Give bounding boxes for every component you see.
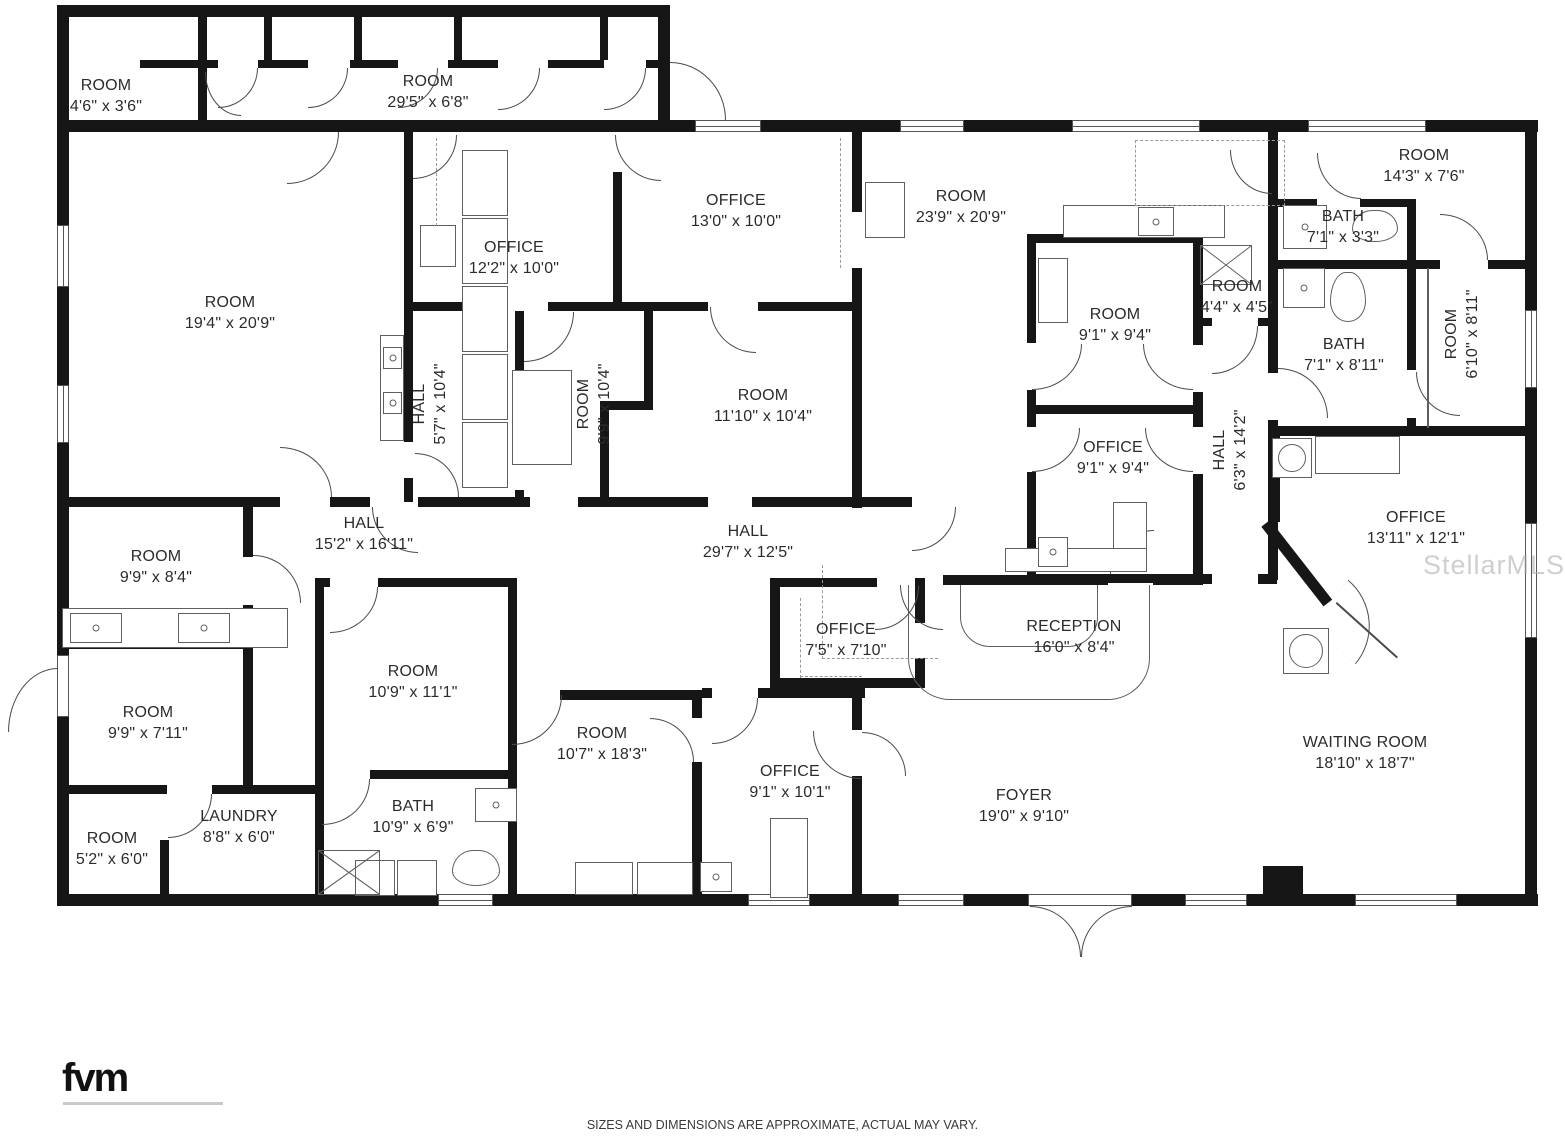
room-label: ROOM14'3" x 7'6": [1383, 145, 1464, 187]
furniture-rect: [462, 422, 508, 488]
wall-segment: [1407, 199, 1416, 260]
wall-segment: [646, 60, 670, 68]
door-arc-icon: [287, 132, 339, 184]
fvm-logo: fvm: [62, 1056, 127, 1101]
door-arc-icon: [322, 779, 370, 825]
furniture-rect: [462, 150, 508, 216]
wall-segment: [613, 172, 622, 302]
sink-icon: [1138, 207, 1174, 236]
room-dims: 9'1" x 9'4": [1077, 458, 1149, 479]
window: [1072, 120, 1200, 132]
room-label: ROOM9'9" x 7'11": [108, 702, 188, 744]
door-arc-icon: [862, 732, 906, 776]
room-name: ROOM: [916, 186, 1006, 207]
furniture-rect: [770, 818, 808, 898]
room-name: OFFICE: [805, 619, 886, 640]
door-arc-icon: [650, 718, 694, 762]
room-dims: 5'7" x 10'4": [430, 363, 451, 444]
room-dims: 7'1" x 8'11": [1304, 355, 1384, 376]
room-label: OFFICE13'0" x 10'0": [691, 190, 781, 232]
room-label: OFFICE13'11" x 12'1": [1367, 507, 1465, 549]
room-name: ROOM: [1079, 304, 1151, 325]
room-label: ROOM4'6" x 3'6": [70, 75, 142, 117]
room-label: ROOM10'9" x 11'1": [368, 661, 457, 703]
wall-segment: [560, 690, 702, 700]
window: [57, 225, 69, 287]
room-name: WAITING ROOM: [1303, 732, 1427, 753]
wall-segment: [1263, 866, 1303, 896]
room-label: OFFICE9'1" x 10'1": [749, 761, 830, 803]
room-dims: 19'0" x 9'10": [979, 806, 1069, 827]
watermark: StellarMLS: [1423, 550, 1565, 581]
wall-segment: [852, 776, 862, 905]
dashed-guide-line: [800, 676, 862, 677]
window: [438, 894, 493, 906]
room-name: ROOM: [1383, 145, 1464, 166]
furniture-rect: [575, 862, 633, 895]
furniture-rect: [462, 286, 508, 352]
wall-segment: [370, 770, 508, 779]
door-arc-icon: [1317, 153, 1361, 199]
sink-icon: [70, 613, 122, 643]
sink-icon: [700, 862, 732, 892]
door-opening: [1028, 894, 1132, 906]
wall-segment: [770, 578, 780, 678]
toilet-icon: [1330, 272, 1366, 322]
furniture-rect: [1315, 436, 1400, 474]
room-label: HALL15'2" x 16'11": [315, 513, 413, 555]
wall-segment: [160, 840, 169, 894]
room-label: ROOM9'9" x 10'4": [573, 363, 615, 444]
room-label: BATH7'1" x 3'3": [1307, 206, 1379, 248]
door-opening: [57, 655, 69, 717]
door-arc-icon: [415, 453, 459, 497]
door-arc-icon: [413, 135, 457, 179]
wall-segment: [315, 578, 330, 587]
room-dims: 6'10" x 8'11": [1462, 289, 1483, 378]
door-arc-icon: [205, 72, 241, 116]
door-arc-icon: [912, 507, 956, 551]
room-label: ROOM9'1" x 9'4": [1079, 304, 1151, 346]
door-arc-icon: [524, 312, 574, 362]
disclaimer-text: SIZES AND DIMENSIONS ARE APPROXIMATE, AC…: [0, 1118, 1565, 1132]
room-name: ROOM: [557, 723, 647, 744]
room-label: OFFICE12'2" x 10'0": [469, 237, 559, 279]
wall-segment: [458, 497, 530, 507]
room-name: HALL: [1209, 409, 1230, 490]
room-dims: 12'2" x 10'0": [469, 258, 559, 279]
wall-segment: [852, 688, 862, 730]
room-dims: 19'4" x 20'9": [185, 313, 275, 334]
door-arc-icon: [8, 668, 58, 732]
wall-segment: [692, 690, 702, 718]
room-name: ROOM: [120, 546, 192, 567]
room-name: ROOM: [76, 828, 148, 849]
window: [1525, 310, 1537, 388]
door-arc-icon: [280, 447, 332, 497]
wall-segment: [702, 688, 712, 698]
wall-segment: [212, 785, 315, 794]
wall-segment: [454, 16, 462, 60]
room-label: ROOM5'2" x 6'0": [76, 828, 148, 870]
window: [898, 894, 964, 906]
furniture-rect: [397, 860, 437, 896]
room-label: HALL5'7" x 10'4": [409, 363, 451, 444]
furniture-rect: [420, 225, 456, 267]
room-name: FOYER: [979, 785, 1069, 806]
room-dims: 9'1" x 9'4": [1079, 325, 1151, 346]
window: [57, 385, 69, 443]
wall-segment: [648, 497, 708, 507]
room-dims: 10'9" x 6'9": [372, 817, 453, 838]
wall-segment: [1027, 574, 1203, 583]
wall-segment: [1203, 574, 1212, 584]
room-dims: 6'3" x 14'2": [1230, 409, 1251, 490]
door-arc-icon: [604, 68, 646, 110]
room-dims: 13'11" x 12'1": [1367, 528, 1465, 549]
room-label: ROOM6'10" x 8'11": [1441, 289, 1483, 378]
door-arc-icon: [253, 555, 301, 603]
room-name: BATH: [1307, 206, 1379, 227]
room-name: OFFICE: [749, 761, 830, 782]
room-dims: 18'10" x 18'7": [1303, 753, 1427, 774]
wall-segment: [780, 578, 877, 587]
door-arc-icon: [1145, 428, 1193, 472]
sink-icon: [1038, 537, 1068, 567]
room-label: ROOM9'9" x 8'4": [120, 546, 192, 588]
room-name: ROOM: [714, 385, 812, 406]
room-dims: 14'3" x 7'6": [1383, 166, 1464, 187]
wall-segment: [1027, 405, 1203, 414]
wall-segment: [1525, 120, 1537, 906]
room-dims: 4'6" x 3'6": [70, 96, 142, 117]
room-name: ROOM: [108, 702, 188, 723]
window: [1185, 894, 1247, 906]
room-dims: 16'0" x 8'4": [1026, 637, 1121, 658]
room-name: HALL: [409, 363, 430, 444]
door-arc-icon: [1081, 906, 1132, 957]
room-label: ROOM29'5" x 6'8": [387, 71, 468, 113]
wall-segment: [600, 16, 608, 60]
floor-plan: ROOM4'6" x 3'6"ROOM29'5" x 6'8"ROOM19'4"…: [0, 0, 1565, 1138]
toilet-icon: [452, 850, 500, 886]
room-name: OFFICE: [691, 190, 781, 211]
round-sink-icon: [1272, 438, 1312, 478]
door-arc-icon: [1143, 344, 1193, 390]
door-arc-icon: [712, 698, 758, 744]
wall-segment: [57, 5, 69, 906]
sink-icon: [383, 392, 402, 414]
door-arc-icon: [512, 695, 562, 745]
room-name: BATH: [1304, 334, 1384, 355]
dashed-guide-line: [436, 138, 437, 226]
wall-segment: [258, 60, 308, 68]
room-name: RECEPTION: [1026, 616, 1121, 637]
room-label: BATH7'1" x 8'11": [1304, 334, 1384, 376]
door-arc-icon: [670, 62, 726, 120]
round-sink-icon: [1283, 628, 1329, 674]
wall-segment: [448, 60, 498, 68]
wall-segment: [1193, 474, 1203, 582]
room-dims: 11'10" x 10'4": [714, 406, 812, 427]
furniture-rect: [512, 370, 572, 465]
room-label: HALL6'3" x 14'2": [1209, 409, 1251, 490]
wall-segment: [140, 60, 218, 68]
wall-segment: [770, 678, 925, 688]
room-label: ROOM11'10" x 10'4": [714, 385, 812, 427]
room-name: HALL: [315, 513, 413, 534]
room-dims: 4'4" x 4'5": [1201, 297, 1273, 318]
room-dims: 7'1" x 3'3": [1307, 227, 1379, 248]
sink-icon: [178, 613, 230, 643]
room-label: BATH10'9" x 6'9": [372, 796, 453, 838]
window: [1355, 894, 1457, 906]
wall-segment: [758, 688, 865, 698]
room-name: LAUNDRY: [200, 806, 278, 827]
door-arc-icon: [1416, 372, 1460, 416]
wall-segment: [350, 60, 398, 68]
room-name: ROOM: [1441, 289, 1462, 378]
furniture-rect: [1038, 258, 1068, 323]
shower-icon: [318, 850, 380, 895]
wall-segment: [1277, 426, 1527, 436]
wall-segment: [548, 60, 604, 68]
wall-segment: [758, 302, 862, 311]
wall-segment: [404, 478, 413, 502]
room-dims: 13'0" x 10'0": [691, 211, 781, 232]
room-dims: 8'8" x 6'0": [200, 827, 278, 848]
room-label: ROOM10'7" x 18'3": [557, 723, 647, 765]
room-name: HALL: [703, 521, 793, 542]
room-label: HALL29'7" x 12'5": [703, 521, 793, 563]
room-label: WAITING ROOM18'10" x 18'7": [1303, 732, 1427, 774]
room-dims: 9'9" x 7'11": [108, 723, 188, 744]
furniture-rect: [1005, 548, 1147, 572]
room-name: ROOM: [368, 661, 457, 682]
sink-icon: [1283, 268, 1325, 308]
room-label: ROOM19'4" x 20'9": [185, 292, 275, 334]
wall-segment: [644, 311, 653, 401]
door-arc-icon: [308, 68, 348, 108]
room-dims: 7'5" x 7'10": [805, 640, 886, 661]
room-dims: 29'5" x 6'8": [387, 92, 468, 113]
door-arc-icon: [710, 307, 756, 353]
wall-segment: [1027, 242, 1036, 343]
room-name: ROOM: [1201, 276, 1273, 297]
wall-segment: [264, 16, 272, 60]
logo-tagline: [63, 1102, 223, 1105]
room-label: ROOM4'4" x 4'5": [1201, 276, 1273, 318]
dashed-guide-line: [800, 598, 801, 678]
dashed-guide-line: [840, 138, 841, 268]
furniture-rect: [637, 862, 693, 895]
wall-segment: [418, 497, 458, 507]
room-label: OFFICE9'1" x 9'4": [1077, 437, 1149, 479]
room-name: ROOM: [573, 363, 594, 444]
wall-segment: [1488, 260, 1526, 269]
room-label: FOYER19'0" x 9'10": [979, 785, 1069, 827]
wall-segment: [862, 497, 912, 507]
room-name: OFFICE: [469, 237, 559, 258]
sink-icon: [475, 788, 517, 822]
room-name: OFFICE: [1367, 507, 1465, 528]
window: [900, 120, 964, 132]
room-dims: 10'7" x 18'3": [557, 744, 647, 765]
room-label: OFFICE7'5" x 7'10": [805, 619, 886, 661]
room-dims: 9'1" x 10'1": [749, 782, 830, 803]
room-label: LAUNDRY8'8" x 6'0": [200, 806, 278, 848]
door-arc-icon: [330, 587, 378, 633]
wall-segment: [852, 132, 862, 212]
room-name: BATH: [372, 796, 453, 817]
wall-segment: [578, 497, 648, 507]
furniture-rect: [462, 354, 508, 420]
dashed-guide-line: [1135, 140, 1285, 206]
sink-icon: [383, 347, 402, 369]
door-arc-icon: [1032, 344, 1082, 390]
room-name: ROOM: [70, 75, 142, 96]
wall-segment: [1407, 260, 1416, 370]
window: [1308, 120, 1426, 132]
wall-segment: [1193, 392, 1203, 427]
room-label: ROOM23'9" x 20'9": [916, 186, 1006, 228]
door-arc-icon: [1212, 326, 1258, 374]
room-dims: 23'9" x 20'9": [916, 207, 1006, 228]
wall-segment: [354, 16, 362, 60]
room-dims: 10'9" x 11'1": [368, 682, 457, 703]
wall-segment: [548, 302, 708, 311]
room-name: ROOM: [387, 71, 468, 92]
room-name: ROOM: [185, 292, 275, 313]
wall-segment: [243, 497, 253, 557]
wall-segment: [57, 5, 670, 17]
room-dims: 9'9" x 8'4": [120, 567, 192, 588]
wall-segment: [1197, 318, 1212, 326]
room-dims: 29'7" x 12'5": [703, 542, 793, 563]
room-name: OFFICE: [1077, 437, 1149, 458]
door-arc-icon: [1032, 428, 1080, 472]
furniture-rect: [865, 182, 905, 238]
room-dims: 9'9" x 10'4": [594, 363, 615, 444]
wall-segment: [378, 578, 508, 587]
door-arc-icon: [498, 68, 540, 110]
room-dims: 5'2" x 6'0": [76, 849, 148, 870]
room-dims: 15'2" x 16'11": [315, 534, 413, 555]
wall-segment: [198, 16, 207, 120]
furniture-rect: [1427, 268, 1429, 428]
door-arc-icon: [1030, 906, 1081, 957]
wall-segment: [330, 497, 370, 507]
door-arc-icon: [1440, 214, 1488, 260]
room-label: RECEPTION16'0" x 8'4": [1026, 616, 1121, 658]
wall-segment: [752, 497, 862, 507]
wall-segment: [57, 785, 167, 794]
wall-segment: [658, 5, 670, 132]
window: [695, 120, 761, 132]
